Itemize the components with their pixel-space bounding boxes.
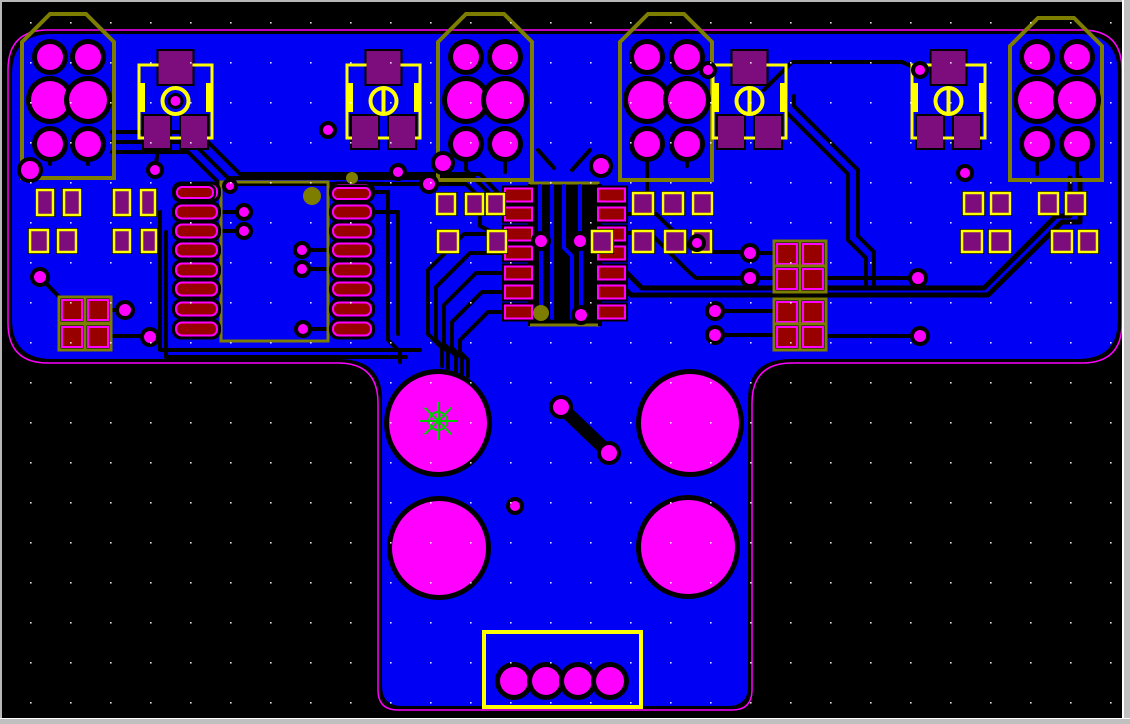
smd-pad[interactable] [142,230,156,252]
through-hole-pad[interactable] [75,44,101,70]
smd-pad[interactable] [30,230,48,252]
grid-dot [990,302,992,304]
grid-dot [550,622,552,624]
grid-dot [270,582,272,584]
via[interactable] [744,272,756,284]
via[interactable] [297,245,307,255]
smd-pad[interactable] [598,286,625,299]
grid-dot [1110,382,1112,384]
grid-dot [270,662,272,664]
grid-dot [310,382,312,384]
grid-dot [110,382,112,384]
grid-dot [1030,542,1032,544]
smd-pad[interactable] [962,231,982,252]
grid-dot [70,662,72,664]
grid-dot [430,22,432,24]
grid-dot [590,622,592,624]
via[interactable] [535,235,547,247]
grid-dot [910,662,912,664]
grid-dot [430,222,432,224]
smd-pad[interactable] [141,190,155,215]
smd-pad[interactable] [777,327,797,347]
smd-pad[interactable] [598,189,625,202]
grid-dot [1030,22,1032,24]
grid-dot [30,422,32,424]
grid-dot [190,702,192,704]
smd-pad[interactable] [917,116,943,148]
grid-dot [910,422,912,424]
grid-dot [990,422,992,424]
smd-pad[interactable] [803,244,823,264]
grid-dot [870,222,872,224]
smd-pad[interactable] [803,302,823,322]
via[interactable] [744,247,756,259]
grid-dot [70,462,72,464]
grid-dot [350,222,352,224]
smd-pad[interactable] [181,116,207,148]
via[interactable] [119,304,131,316]
through-hole-pad[interactable] [1064,44,1090,70]
via[interactable] [297,264,307,274]
grid-dot [870,502,872,504]
grid-dot [510,622,512,624]
through-hole-pad[interactable] [674,44,700,70]
grid-dot [70,302,72,304]
grid-dot [470,702,472,704]
grid-dot [230,582,232,584]
grid-dot [1070,222,1072,224]
grid-dot [190,382,192,384]
window-frame-highlight [0,718,1130,719]
smd-pad[interactable] [438,231,458,252]
grid-dot [270,502,272,504]
grid-dot [870,262,872,264]
via[interactable] [574,235,586,247]
grid-dot [1030,102,1032,104]
grid-dot [790,542,792,544]
through-hole-pad[interactable] [1018,81,1056,119]
grid-dot [30,382,32,384]
smd-pad[interactable] [1066,193,1085,214]
through-hole-pad[interactable] [532,667,560,695]
grid-dot [510,182,512,184]
grid-dot [1030,462,1032,464]
grid-dot [70,382,72,384]
smd-pad[interactable] [176,283,217,296]
smd-pad[interactable] [777,244,797,264]
grid-dot [670,382,672,384]
grid-dot [1030,62,1032,64]
grid-dot [990,382,992,384]
smd-pad[interactable] [37,190,53,215]
grid-dot [950,382,952,384]
cap-silk-bracket [714,83,719,112]
smd-pad[interactable] [64,190,80,215]
smd-pad[interactable] [333,264,371,277]
smd-pad[interactable] [505,228,532,241]
grid-dot [590,102,592,104]
grid-dot [390,422,392,424]
grid-dot [150,262,152,264]
grid-dot [350,182,352,184]
via[interactable] [960,168,970,178]
grid-dot [470,222,472,224]
grid-dot [790,62,792,64]
via[interactable] [298,324,308,334]
grid-dot [1110,342,1112,344]
via[interactable] [709,305,721,317]
grid-dot [990,582,992,584]
grid-dot [390,582,392,584]
via[interactable] [393,167,403,177]
through-hole-pad[interactable] [492,44,518,70]
grid-dot [150,62,152,64]
grid-dot [790,222,792,224]
smd-pad[interactable] [88,327,108,347]
smd-pad[interactable] [62,327,82,347]
through-hole-pad[interactable] [486,81,524,119]
grid-dot [990,662,992,664]
smd-pad[interactable] [991,193,1010,214]
smd-pad[interactable] [633,193,653,214]
grid-dot [390,622,392,624]
smd-pad[interactable] [176,303,217,316]
grid-dot [990,542,992,544]
grid-dot [390,262,392,264]
grid-dot [510,462,512,464]
smd-pad[interactable] [718,116,744,148]
grid-dot [710,262,712,264]
via[interactable] [915,65,925,75]
smd-pad[interactable] [803,327,823,347]
grid-dot [30,622,32,624]
smd-pad[interactable] [755,116,781,148]
grid-dot [950,262,952,264]
grid-dot [510,582,512,584]
grid-dot [870,302,872,304]
grid-dot [1030,702,1032,704]
grid-dot [150,542,152,544]
grid-dot [1030,182,1032,184]
grid-dot [30,222,32,224]
grid-dot [870,422,872,424]
grid-dot [190,22,192,24]
grid-dot [110,622,112,624]
smd-pad[interactable] [176,225,217,238]
smd-pad[interactable] [598,208,625,221]
grid-dot [110,222,112,224]
through-hole-pad[interactable] [564,667,592,695]
grid-dot [190,62,192,64]
grid-dot [310,302,312,304]
smd-pad[interactable] [733,51,767,84]
through-hole-pad[interactable] [674,131,700,157]
grid-dot [110,502,112,504]
smd-pad[interactable] [333,225,371,238]
smd-pad[interactable] [487,194,504,214]
grid-dot [190,222,192,224]
smd-pad[interactable] [663,193,683,214]
smd-pad[interactable] [389,116,415,148]
grid-dot [270,342,272,344]
smd-pad[interactable] [88,300,108,320]
grid-dot [270,302,272,304]
smd-pad[interactable] [62,300,82,320]
smd-pad[interactable] [114,190,130,215]
smd-pad[interactable] [505,247,532,260]
smd-pad[interactable] [803,269,823,289]
grid-dot [870,102,872,104]
through-hole-pad[interactable] [453,131,479,157]
grid-dot [1030,422,1032,424]
grid-dot [550,462,552,464]
smd-pad[interactable] [114,230,130,252]
through-hole-pad[interactable] [1064,131,1090,157]
grid-dot [790,22,792,24]
grid-dot [110,182,112,184]
through-hole-pad[interactable] [447,81,485,119]
grid-dot [590,342,592,344]
through-hole-pad[interactable] [453,44,479,70]
through-hole-pad[interactable] [21,161,39,179]
grid-dot [390,702,392,704]
grid-dot [30,462,32,464]
grid-dot [750,502,752,504]
grid-dot [630,502,632,504]
grid-dot [190,462,192,464]
grid-dot [950,462,952,464]
smd-pad[interactable] [333,206,371,219]
mounting-pad[interactable] [641,500,735,594]
grid-dot [430,262,432,264]
grid-dot [350,142,352,144]
through-hole-pad[interactable] [601,445,617,461]
via[interactable] [239,207,249,217]
grid-dot [790,622,792,624]
through-hole-pad[interactable] [553,399,569,415]
smd-pad[interactable] [777,269,797,289]
grid-dot [230,62,232,64]
via[interactable] [575,309,587,321]
grid-dot [1110,662,1112,664]
grid-dot [1070,142,1072,144]
via[interactable] [703,65,713,75]
smd-pad[interactable] [176,323,217,336]
grid-dot [190,662,192,664]
smd-pad[interactable] [505,189,532,202]
smd-pad[interactable] [592,231,612,252]
grid-dot [950,342,952,344]
grid-dot [830,22,832,24]
grid-dot [670,582,672,584]
grid-dot [590,182,592,184]
smd-pad[interactable] [177,187,213,198]
grid-dot [790,702,792,704]
grid-dot [110,342,112,344]
smd-pad[interactable] [333,244,371,257]
through-hole-pad[interactable] [31,81,69,119]
through-hole-pad[interactable] [37,131,63,157]
grid-dot [150,422,152,424]
through-hole-pad[interactable] [69,81,107,119]
through-hole-pad[interactable] [435,155,451,171]
through-hole-pad[interactable] [492,131,518,157]
smd-pad[interactable] [665,231,685,252]
mounting-pad[interactable] [641,374,739,472]
smd-pad[interactable] [159,51,193,84]
smd-pad[interactable] [932,51,966,84]
grid-dot [630,622,632,624]
grid-dot [230,102,232,104]
grid-dot [710,582,712,584]
through-hole-pad[interactable] [1024,131,1050,157]
grid-dot [30,662,32,664]
grid-dot [630,662,632,664]
smd-pad[interactable] [488,231,506,252]
grid-dot [470,422,472,424]
grid-dot [550,382,552,384]
grid-dot [70,422,72,424]
grid-dot [310,102,312,104]
smd-pad[interactable] [954,116,980,148]
smd-pad[interactable] [466,194,483,214]
grid-dot [1030,342,1032,344]
via[interactable] [692,238,702,248]
grid-dot [270,422,272,424]
smd-pad[interactable] [505,267,532,280]
grid-dot [590,422,592,424]
through-hole-pad[interactable] [75,131,101,157]
via[interactable] [144,331,156,343]
smd-pad[interactable] [333,303,371,316]
grid-dot [30,542,32,544]
smd-pad[interactable] [505,306,532,319]
grid-dot [550,222,552,224]
grid-dot [990,102,992,104]
smd-pad[interactable] [633,231,653,252]
smd-pad[interactable] [333,323,371,336]
smd-pad[interactable] [990,231,1010,252]
via[interactable] [914,330,926,342]
through-hole-pad[interactable] [500,667,528,695]
smd-pad[interactable] [1039,193,1058,214]
grid-dot [230,22,232,24]
grid-dot [310,582,312,584]
grid-dot [1110,462,1112,464]
smd-pad[interactable] [144,116,170,148]
smd-pad[interactable] [1079,231,1097,252]
through-hole-pad[interactable] [596,667,624,695]
smd-pad[interactable] [352,116,378,148]
via[interactable] [239,226,249,236]
via[interactable] [34,271,46,283]
grid-dot [830,502,832,504]
grid-dot [750,182,752,184]
grid-dot [190,542,192,544]
via[interactable] [912,272,924,284]
smd-pad[interactable] [598,267,625,280]
grid-dot [190,622,192,624]
pcb-editor-canvas[interactable] [0,0,1130,724]
via[interactable] [171,96,181,106]
grid-dot [430,342,432,344]
window-frame-bottom[interactable] [0,719,1130,724]
through-hole-pad[interactable] [628,81,666,119]
smd-pad[interactable] [333,188,370,199]
grid-dot [710,662,712,664]
smd-pad[interactable] [964,193,983,214]
smd-pad[interactable] [58,230,76,252]
grid-dot [750,582,752,584]
grid-dot [1110,502,1112,504]
grid-dot [750,382,752,384]
through-hole-pad[interactable] [634,131,660,157]
via[interactable] [709,329,721,341]
grid-dot [350,582,352,584]
grid-dot [590,142,592,144]
grid-dot [590,62,592,64]
window-frame-right[interactable] [1124,0,1130,724]
grid-dot [630,22,632,24]
smd-pad[interactable] [598,306,625,319]
grid-dot [510,22,512,24]
via[interactable] [423,178,435,190]
via[interactable] [323,125,333,135]
grid-dot [70,102,72,104]
through-hole-pad[interactable] [634,44,660,70]
grid-dot [830,182,832,184]
grid-dot [670,142,672,144]
smd-pad[interactable] [693,193,712,214]
grid-dot [70,702,72,704]
grid-dot [830,582,832,584]
smd-pad[interactable] [1052,231,1072,252]
through-hole-pad[interactable] [37,44,63,70]
via[interactable] [150,165,160,175]
through-hole-pad[interactable] [1058,81,1096,119]
grid-dot [310,662,312,664]
grid-dot [390,182,392,184]
grid-dot [550,542,552,544]
smd-pad[interactable] [176,244,217,257]
grid-dot [910,222,912,224]
smd-pad[interactable] [333,283,371,296]
pcb-layout-drawing[interactable] [0,0,1130,724]
smd-pad[interactable] [505,208,532,221]
grid-dot [230,182,232,184]
through-hole-pad[interactable] [668,81,706,119]
grid-dot [710,222,712,224]
grid-dot [830,262,832,264]
smd-pad[interactable] [777,302,797,322]
through-hole-pad[interactable] [1024,44,1050,70]
grid-dot [910,582,912,584]
grid-dot [390,502,392,504]
grid-dot [110,262,112,264]
grid-dot [390,102,392,104]
smd-pad[interactable] [176,206,217,219]
smd-pad[interactable] [437,194,455,214]
smd-pad[interactable] [505,286,532,299]
grid-dot [710,622,712,624]
smd-pad[interactable] [176,264,217,277]
smd-pad[interactable] [367,51,401,84]
mounting-pad[interactable] [392,501,486,595]
grid-dot [470,22,472,24]
through-hole-pad[interactable] [593,158,609,174]
grid-dot [270,142,272,144]
grid-dot [110,582,112,584]
